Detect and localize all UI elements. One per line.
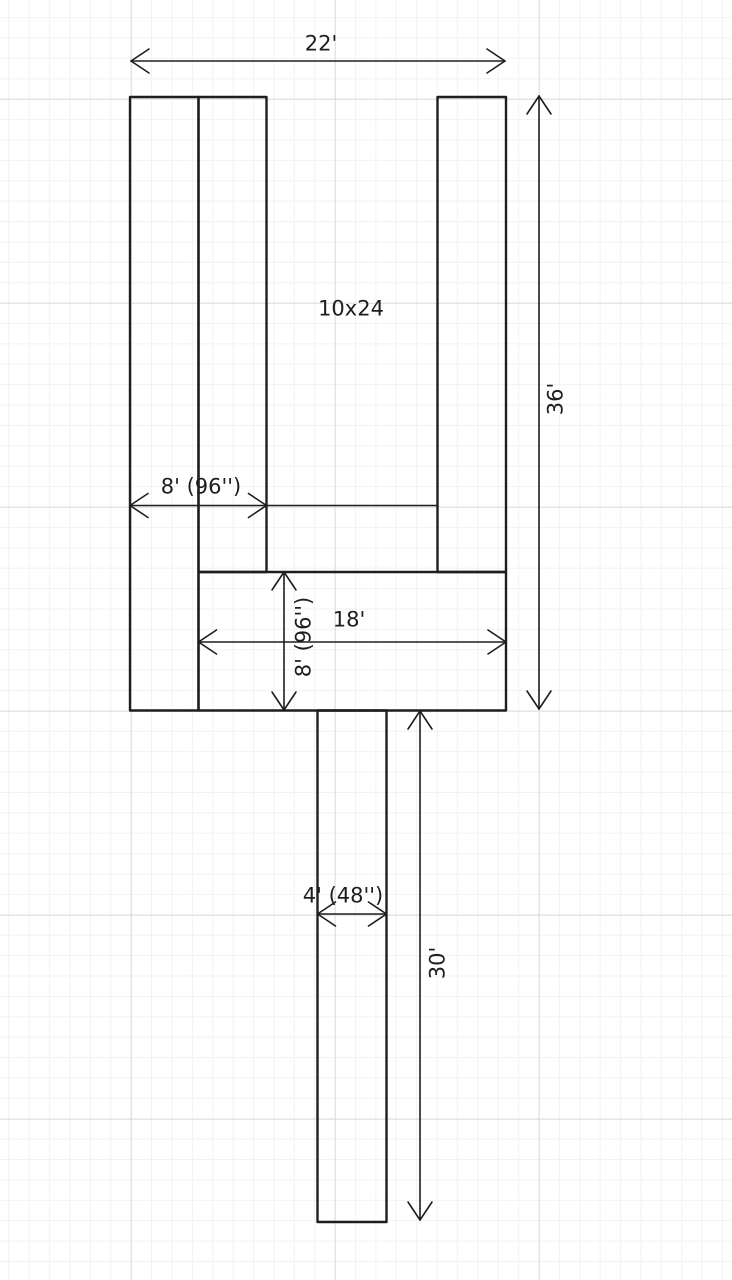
dim-walkway-length-label[interactable]: 30' [426,947,449,980]
dim-head-depth-label[interactable]: 8' (96'') [292,597,315,677]
left-inner-slip-rect[interactable] [199,97,267,572]
dim-head-width[interactable] [199,630,507,654]
walkway-rect[interactable] [318,711,387,1223]
dock-plan-drawing [0,0,732,1280]
dim-head-width-label[interactable]: 18' [333,608,366,631]
slip-size-label[interactable]: 10x24 [318,297,384,320]
left-outer-slip-rect[interactable] [130,97,199,711]
dim-overall-width-label[interactable]: 22' [305,32,338,55]
drawing-canvas[interactable]: 22'36'8' (96'')18'8' (96'')4' (48'')30'1… [0,0,732,1280]
right-slip-rect[interactable] [438,97,507,572]
dim-walkway-width-label[interactable]: 4' (48'') [303,884,383,907]
dim-overall-length-label[interactable]: 36' [544,383,567,416]
dim-slips-width-label[interactable]: 8' (96'') [161,475,241,498]
